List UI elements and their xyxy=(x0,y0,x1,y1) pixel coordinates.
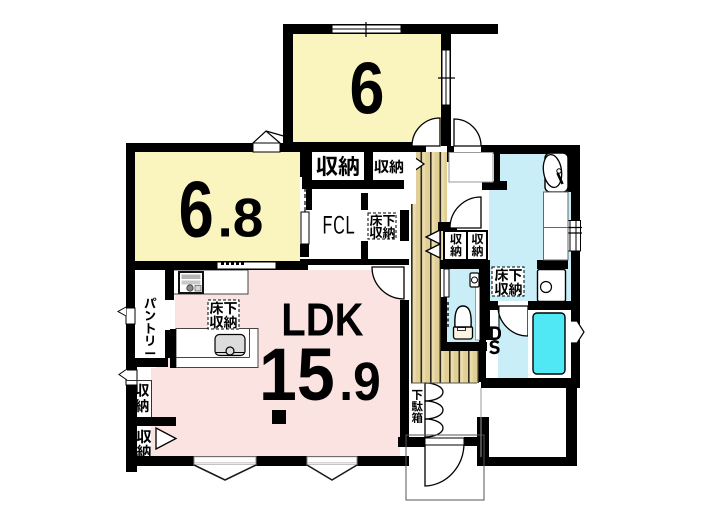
svg-text:6: 6 xyxy=(179,166,214,255)
svg-text:.8: .8 xyxy=(218,186,264,248)
svg-text:6: 6 xyxy=(350,48,385,129)
